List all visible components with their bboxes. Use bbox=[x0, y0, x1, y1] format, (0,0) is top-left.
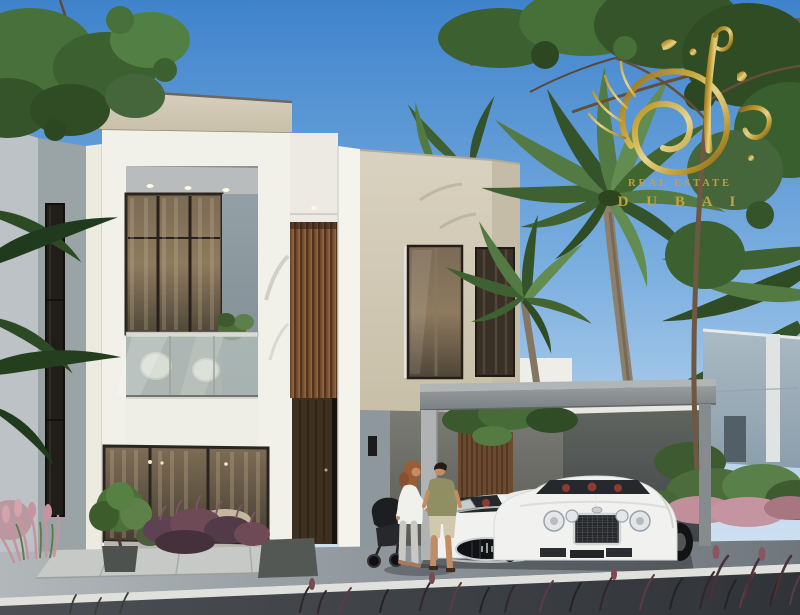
watermark-text-line1: REAL ESTATE bbox=[628, 178, 732, 189]
bentley-badge bbox=[592, 507, 602, 513]
neighbor-doorway bbox=[724, 416, 746, 462]
villa-render-scene: REAL ESTATE D U B A I bbox=[0, 0, 800, 615]
planter-box bbox=[258, 538, 318, 578]
villa-render-image: REAL ESTATE D U B A I bbox=[0, 0, 800, 615]
balcony-opening bbox=[116, 166, 258, 448]
balcony-soffit bbox=[126, 166, 258, 196]
balcony-spandrel bbox=[126, 397, 258, 448]
wood-slat-cladding bbox=[290, 133, 338, 398]
villa-white-column bbox=[338, 146, 360, 558]
neighbor-building bbox=[703, 330, 800, 468]
woman-pants bbox=[402, 524, 403, 560]
entry-door bbox=[292, 398, 338, 544]
man-shirt bbox=[427, 478, 457, 516]
carport-post-right bbox=[699, 404, 711, 546]
wall-sconce bbox=[368, 436, 377, 456]
watermark-text-line2: D U B A I bbox=[618, 194, 743, 210]
plant-pot bbox=[102, 546, 138, 572]
